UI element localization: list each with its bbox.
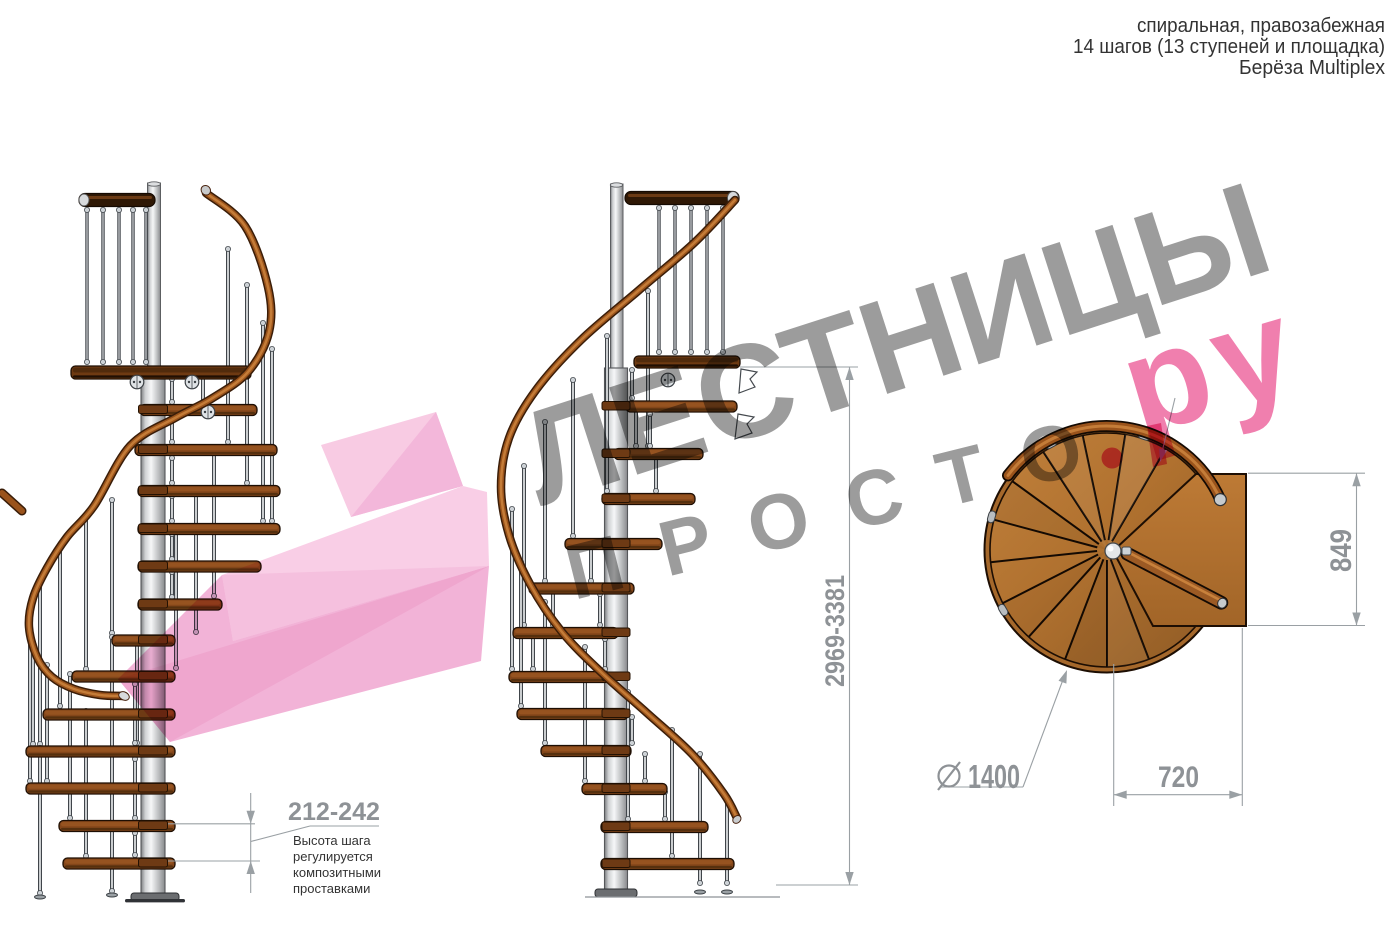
svg-text:14 шагов (13 ступеней и площад: 14 шагов (13 ступеней и площадка)	[1073, 35, 1385, 58]
svg-text:спиральная, правозабежная: спиральная, правозабежная	[1137, 14, 1385, 37]
svg-text:212-242: 212-242	[288, 798, 380, 826]
svg-text:проставками: проставками	[293, 881, 370, 896]
svg-text:849: 849	[1325, 529, 1358, 572]
svg-text:720: 720	[1158, 761, 1199, 794]
svg-text:композитными: композитными	[293, 865, 381, 880]
svg-text:2969-3381: 2969-3381	[820, 575, 850, 687]
svg-text:Берёза Multiplex: Берёза Multiplex	[1239, 56, 1386, 79]
svg-text:1400: 1400	[968, 758, 1020, 795]
svg-text:регулируется: регулируется	[293, 849, 373, 864]
svg-text:Высота шага: Высота шага	[293, 833, 371, 848]
